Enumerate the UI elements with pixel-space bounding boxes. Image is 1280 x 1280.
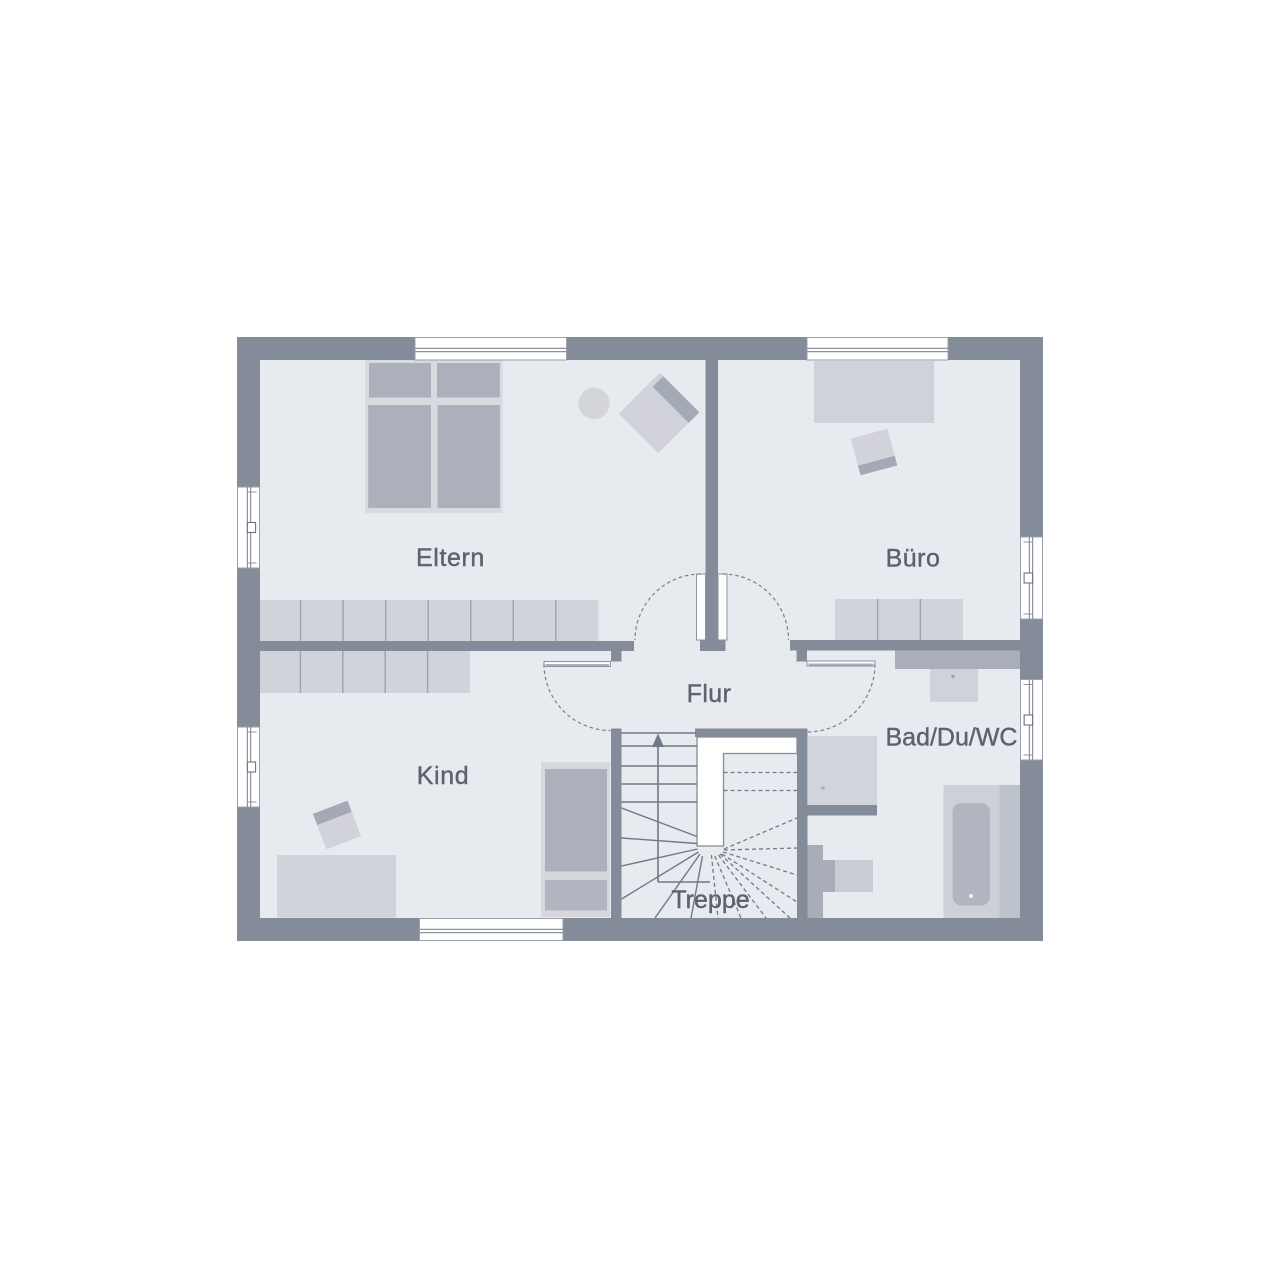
svg-text:Kind: Kind — [417, 762, 469, 790]
svg-text:Treppe: Treppe — [671, 886, 749, 914]
svg-text:Bad/Du/WC: Bad/Du/WC — [886, 724, 1018, 752]
svg-text:Flur: Flur — [687, 680, 732, 708]
svg-text:Büro: Büro — [886, 545, 941, 573]
svg-text:Eltern: Eltern — [416, 544, 485, 572]
